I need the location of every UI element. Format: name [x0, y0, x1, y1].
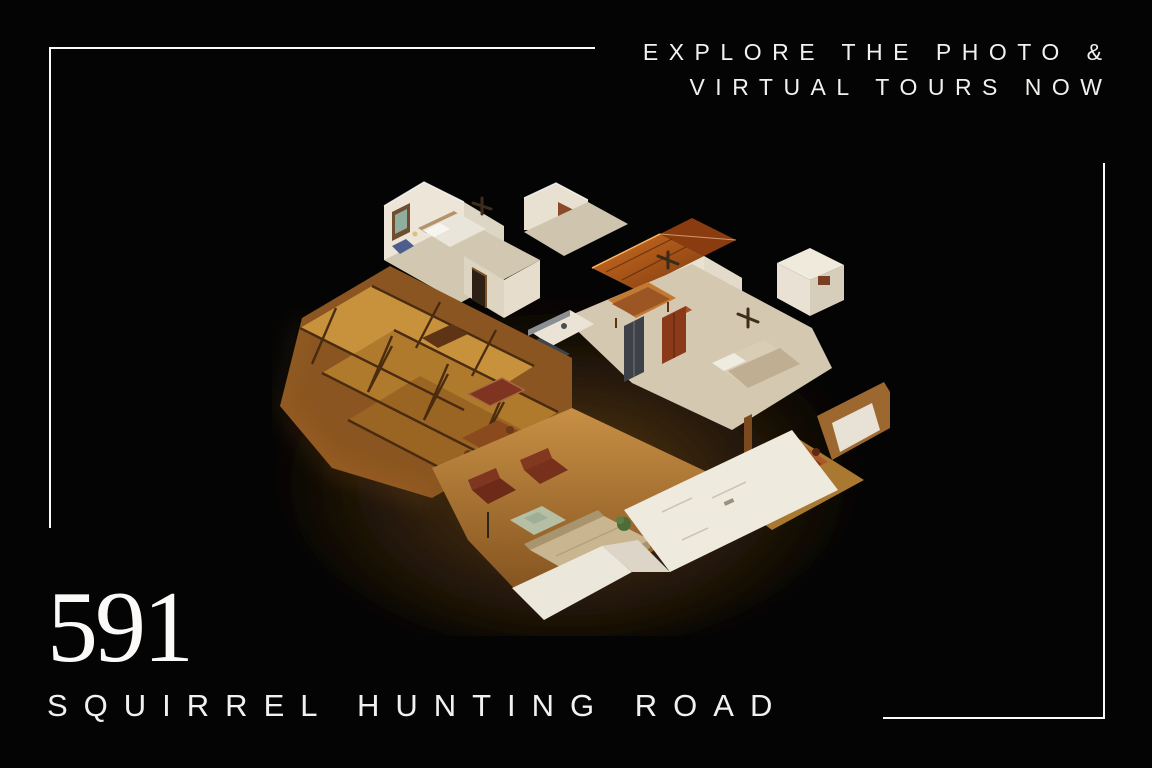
address-number: 591	[47, 577, 191, 679]
frame-line-left	[49, 47, 51, 528]
address-street: SQUIRREL HUNTING ROAD	[47, 688, 788, 724]
tagline-line-2: VIRTUAL TOURS NOW	[643, 70, 1113, 105]
tagline-line-1: EXPLORE THE PHOTO &	[643, 35, 1113, 70]
poster-canvas: EXPLORE THE PHOTO & VIRTUAL TOURS NOW	[0, 0, 1152, 768]
dollhouse-3d-render	[272, 168, 896, 636]
frame-line-right	[1103, 163, 1105, 719]
frame-line-bottom	[883, 717, 1105, 719]
frame-line-top	[49, 47, 595, 49]
tagline-cta[interactable]: EXPLORE THE PHOTO & VIRTUAL TOURS NOW	[643, 35, 1113, 105]
hero-3d-dollhouse[interactable]	[272, 168, 896, 636]
